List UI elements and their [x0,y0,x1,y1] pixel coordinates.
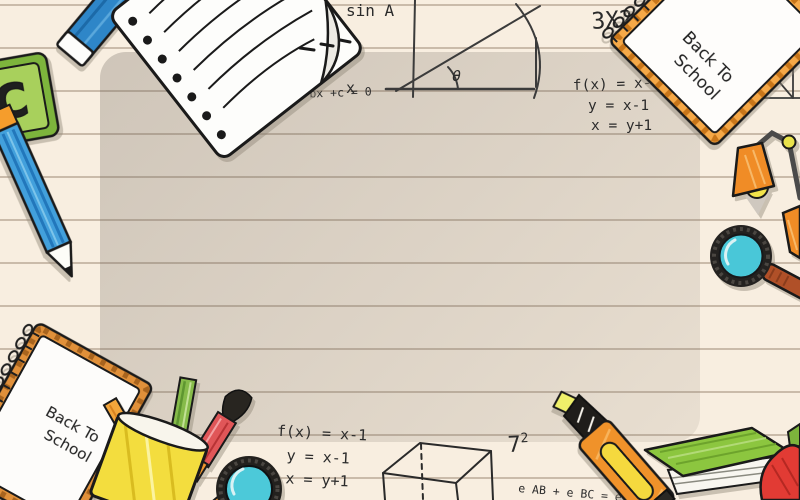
vertical-axis-line [413,0,415,97]
seven-base: 7 [507,432,522,458]
apple-leaf [788,424,800,447]
notepad-sheet [109,0,365,160]
paper-notepad [109,0,365,160]
fx-formula-bottom: f(x) = x-1 [276,422,367,445]
hypotenuse-line [396,6,540,91]
sin-a-formula: sin A [346,1,395,20]
x-formula: x = y+1 [591,118,652,134]
seven-squared-formula: 72 [507,431,529,458]
x-formula-bottom: x = y+1 [285,469,349,490]
y-formula-bottom: y = x-1 [286,446,350,467]
seven-exponent: 2 [520,431,529,446]
back-to-school-illustration: θ x sin A ax2 + bx +c = 0 3X2 f(x) = x-1… [0,0,800,500]
equations-top-right: f(x) = x-1 y = x-1 x = y+1 [573,75,661,134]
cube-hidden-edge [421,444,423,500]
equations-bottom: f(x) = x-1 y = x-1 x = y+1 [274,422,368,492]
utility-knife [544,381,676,500]
doodle-items-layer: θ x sin A ax2 + bx +c = 0 3X2 f(x) = x-1… [0,0,800,500]
cube-top-face [383,443,491,483]
lamp-arm-lower [789,142,800,198]
theta-label: θ [452,67,461,85]
lamp-joint [783,136,796,149]
y-formula: y = x-1 [588,98,649,114]
cube-diagram [383,443,493,500]
